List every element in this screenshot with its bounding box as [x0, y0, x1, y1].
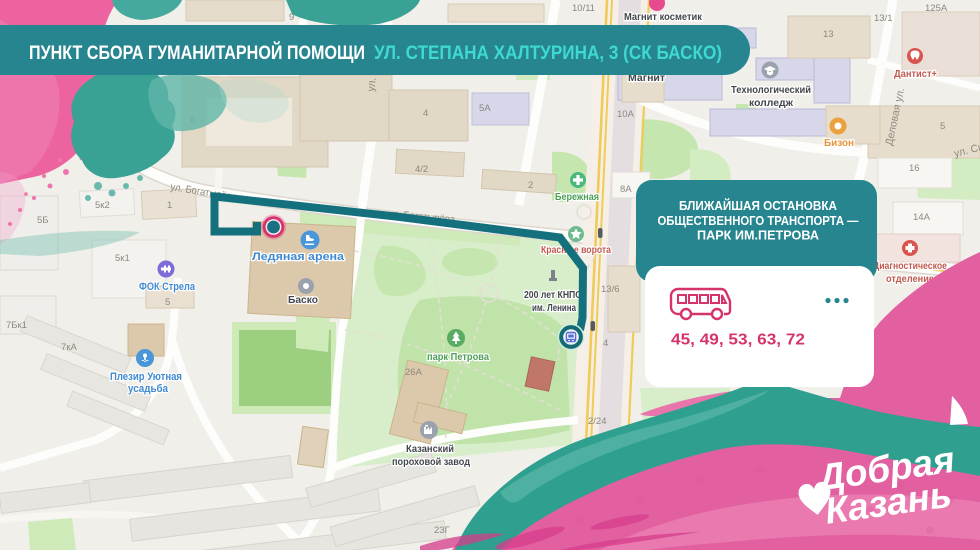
svg-text:ПУНКТ СБОРА ГУМАНИТАРНОЙ ПОМОЩ: ПУНКТ СБОРА ГУМАНИТАРНОЙ ПОМОЩИ	[29, 42, 365, 64]
svg-text:Баско: Баско	[288, 294, 318, 306]
svg-text:26А: 26А	[405, 367, 423, 378]
svg-text:4/2: 4/2	[415, 164, 428, 175]
svg-text:парк Петрова: парк Петрова	[427, 351, 489, 363]
svg-text:5А: 5А	[479, 103, 491, 114]
svg-text:1: 1	[167, 200, 172, 211]
svg-text:14А: 14А	[913, 212, 931, 223]
svg-text:Диагностическое: Диагностическое	[873, 260, 947, 272]
svg-text:45, 49, 53, 63, 72: 45, 49, 53, 63, 72	[671, 332, 805, 349]
svg-text:200 лет КНПО: 200 лет КНПО	[524, 289, 582, 301]
svg-text:16: 16	[909, 163, 920, 174]
svg-text:2/24: 2/24	[588, 416, 607, 427]
svg-text:13: 13	[823, 29, 834, 40]
svg-text:ОБЩЕСТВЕННОГО ТРАНСПОРТА —: ОБЩЕСТВЕННОГО ТРАНСПОРТА —	[658, 213, 859, 228]
svg-text:пороховой завод: пороховой завод	[392, 456, 470, 468]
svg-text:колледж: колледж	[749, 97, 794, 109]
svg-text:4: 4	[423, 108, 428, 119]
svg-text:ФОК Стрела: ФОК Стрела	[139, 281, 196, 293]
svg-text:БЛИЖАЙШАЯ ОСТАНОВКА: БЛИЖАЙШАЯ ОСТАНОВКА	[679, 198, 838, 213]
svg-text:Технологический: Технологический	[731, 84, 811, 96]
svg-text:усадьба: усадьба	[128, 383, 169, 395]
svg-text:10А: 10А	[617, 109, 635, 120]
svg-text:Бережная: Бережная	[555, 191, 599, 203]
svg-text:5к1: 5к1	[115, 253, 130, 264]
svg-text:8А: 8А	[620, 184, 632, 195]
svg-text:5Б: 5Б	[37, 215, 49, 226]
svg-text:7кА: 7кА	[61, 342, 77, 353]
svg-text:ПАРК ИМ.ПЕТРОВА: ПАРК ИМ.ПЕТРОВА	[697, 228, 820, 243]
svg-text:УЛ. СТЕПАНА ХАЛТУРИНА, 3 (СК Б: УЛ. СТЕПАНА ХАЛТУРИНА, 3 (СК БАСКО)	[374, 43, 722, 64]
svg-text:10/11: 10/11	[572, 3, 595, 14]
svg-text:Плезир Уютная: Плезир Уютная	[110, 371, 182, 383]
svg-text:Казанский: Казанский	[406, 443, 454, 455]
svg-text:5: 5	[940, 121, 945, 132]
svg-text:5: 5	[165, 297, 170, 308]
svg-text:Ледяная арена: Ледяная арена	[252, 251, 345, 263]
svg-text:Дантист+: Дантист+	[894, 68, 937, 80]
svg-text:13/1: 13/1	[874, 13, 893, 24]
svg-text:Бизон: Бизон	[824, 137, 854, 149]
svg-text:4: 4	[603, 338, 608, 349]
svg-text:7Бк1: 7Бк1	[6, 320, 27, 331]
svg-text:5к2: 5к2	[95, 200, 110, 211]
svg-text:2: 2	[528, 180, 533, 191]
svg-text:23Г: 23Г	[434, 525, 450, 536]
svg-text:13/6: 13/6	[601, 284, 620, 295]
svg-text:им. Ленина: им. Ленина	[532, 302, 576, 314]
svg-text:Магнит косметик: Магнит косметик	[624, 11, 703, 23]
svg-text:125А: 125А	[925, 3, 948, 14]
